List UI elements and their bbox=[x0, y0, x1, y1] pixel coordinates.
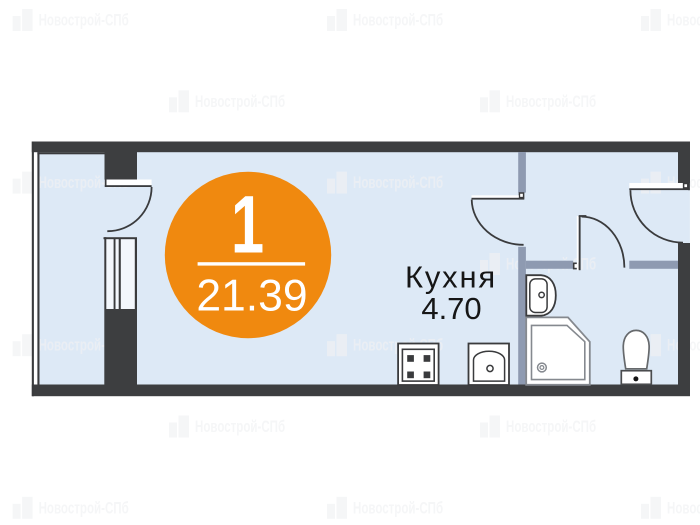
svg-text:Новострой-СПб: Новострой-СПб bbox=[667, 12, 700, 31]
svg-text:Новострой-СПб: Новострой-СПб bbox=[195, 418, 285, 437]
svg-text:Новострой-СПб: Новострой-СПб bbox=[39, 12, 129, 31]
svg-text:Новострой-СПб: Новострой-СПб bbox=[353, 174, 443, 193]
svg-text:21.39: 21.39 bbox=[196, 272, 307, 321]
svg-text:Новострой-СПб: Новострой-СПб bbox=[667, 499, 700, 518]
svg-text:Новострой-СПб: Новострой-СПб bbox=[353, 499, 443, 518]
svg-text:Кухня: Кухня bbox=[405, 260, 497, 295]
svg-text:Новострой-СПб: Новострой-СПб bbox=[39, 499, 129, 518]
svg-text:1: 1 bbox=[231, 179, 264, 270]
svg-text:4.70: 4.70 bbox=[421, 291, 481, 326]
svg-text:Новострой-СПб: Новострой-СПб bbox=[353, 12, 443, 31]
svg-text:Новострой-СПб: Новострой-СПб bbox=[506, 93, 596, 112]
svg-text:Новострой-СПб: Новострой-СПб bbox=[195, 93, 285, 112]
svg-text:Новострой-СПб: Новострой-СПб bbox=[506, 418, 596, 437]
